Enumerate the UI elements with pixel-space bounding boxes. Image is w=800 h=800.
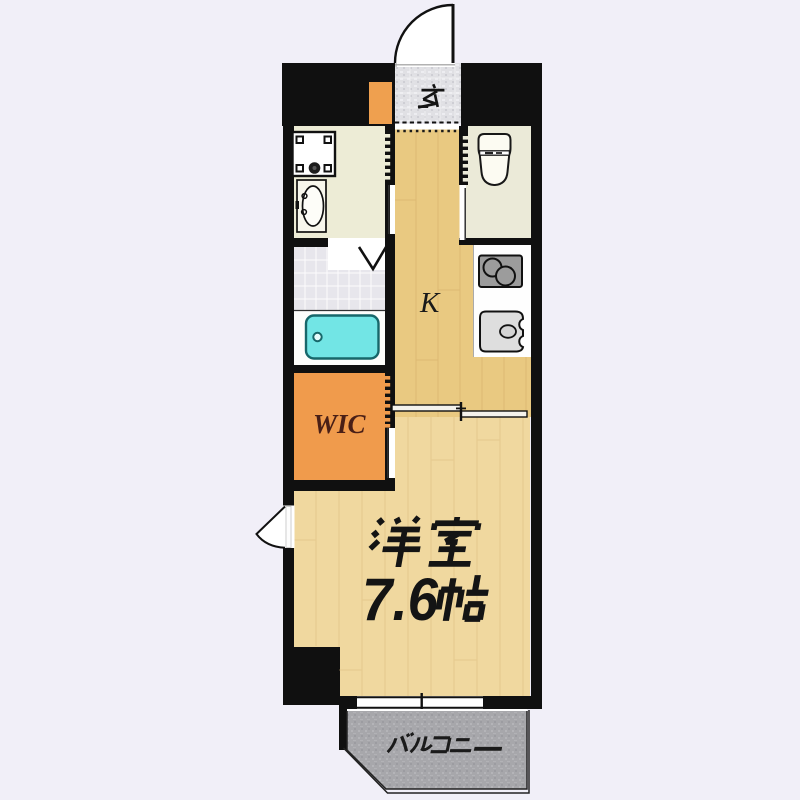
svg-text:WIC: WIC bbox=[313, 409, 367, 439]
svg-text:K: K bbox=[419, 287, 441, 319]
svg-text:7.6: 7.6 bbox=[362, 566, 439, 633]
